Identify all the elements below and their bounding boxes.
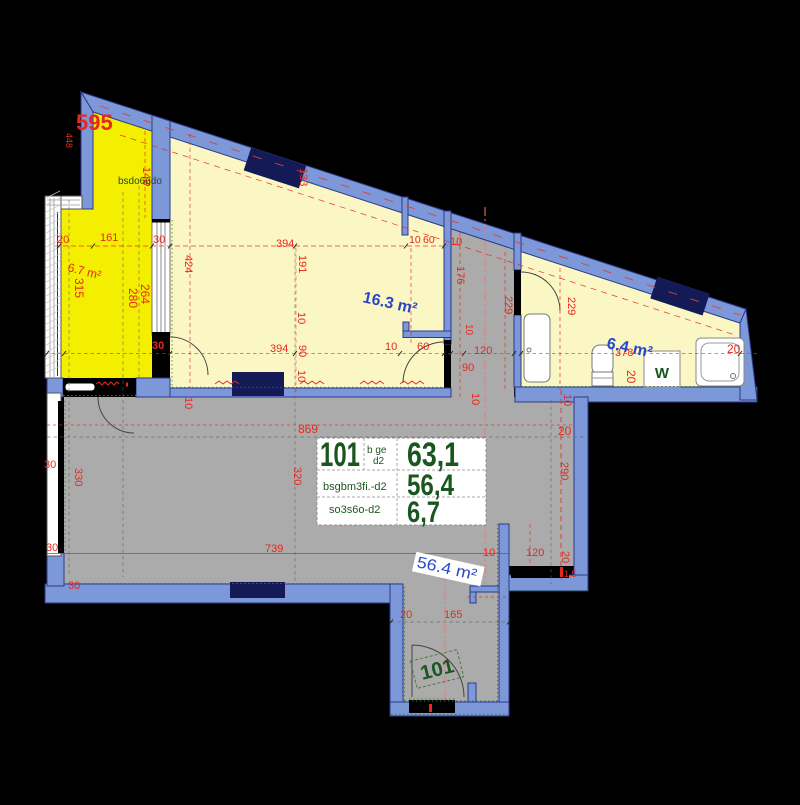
svg-text:10: 10 xyxy=(463,324,474,336)
svg-text:6,7: 6,7 xyxy=(407,496,440,529)
svg-text:bsdo6gdo: bsdo6gdo xyxy=(118,176,162,187)
svg-text:10: 10 xyxy=(385,341,397,353)
svg-text:394: 394 xyxy=(276,238,294,250)
svg-text:30: 30 xyxy=(153,234,165,246)
svg-text:10: 10 xyxy=(409,234,421,246)
svg-text:229: 229 xyxy=(502,296,514,314)
svg-text:330: 330 xyxy=(72,468,84,486)
svg-text:W: W xyxy=(655,365,670,382)
svg-text:30: 30 xyxy=(68,580,80,592)
svg-text:10: 10 xyxy=(295,312,307,324)
svg-text:10: 10 xyxy=(561,394,573,406)
svg-text:20: 20 xyxy=(727,342,741,356)
svg-text:1.5: 1.5 xyxy=(564,569,577,579)
svg-text:so3s6o-d2: so3s6o-d2 xyxy=(329,504,380,516)
svg-text:20: 20 xyxy=(57,234,69,246)
svg-text:280: 280 xyxy=(126,288,140,308)
svg-text:290: 290 xyxy=(558,462,570,480)
svg-text:b ge: b ge xyxy=(367,445,387,456)
svg-text:394: 394 xyxy=(270,343,288,355)
svg-text:bsgbm3fi.-d2: bsgbm3fi.-d2 xyxy=(323,481,387,493)
svg-text:20: 20 xyxy=(559,551,571,563)
svg-text:10: 10 xyxy=(483,547,495,559)
svg-text:90: 90 xyxy=(296,345,308,357)
svg-text:229: 229 xyxy=(565,297,577,315)
svg-text:191: 191 xyxy=(296,255,308,273)
svg-text:120: 120 xyxy=(526,547,544,559)
svg-text:20: 20 xyxy=(400,609,412,621)
svg-text:10: 10 xyxy=(450,236,462,248)
svg-text:101: 101 xyxy=(320,436,360,474)
svg-text:90: 90 xyxy=(462,362,474,374)
svg-text:176: 176 xyxy=(454,266,466,284)
svg-text:739: 739 xyxy=(265,543,283,555)
svg-text:133: 133 xyxy=(297,168,309,186)
svg-text:448: 448 xyxy=(64,133,74,148)
svg-text:424: 424 xyxy=(182,255,194,273)
svg-text:30: 30 xyxy=(46,542,58,554)
svg-text:264: 264 xyxy=(138,284,152,304)
svg-text:869: 869 xyxy=(298,422,318,436)
svg-text:30: 30 xyxy=(152,340,164,352)
svg-text:165: 165 xyxy=(444,609,462,621)
svg-text:315: 315 xyxy=(72,278,86,298)
svg-text:20: 20 xyxy=(558,424,572,438)
svg-text:20: 20 xyxy=(624,370,638,384)
svg-text:10: 10 xyxy=(295,370,307,382)
svg-text:60: 60 xyxy=(417,341,429,353)
svg-text:10: 10 xyxy=(469,393,481,405)
svg-text:30: 30 xyxy=(44,459,56,471)
svg-text:320: 320 xyxy=(291,467,303,485)
svg-text:60: 60 xyxy=(423,234,435,246)
svg-text:120: 120 xyxy=(474,345,492,357)
svg-text:161: 161 xyxy=(100,232,118,244)
svg-text:595: 595 xyxy=(76,110,113,135)
svg-text:10: 10 xyxy=(182,397,194,409)
svg-text:d2: d2 xyxy=(373,456,385,467)
